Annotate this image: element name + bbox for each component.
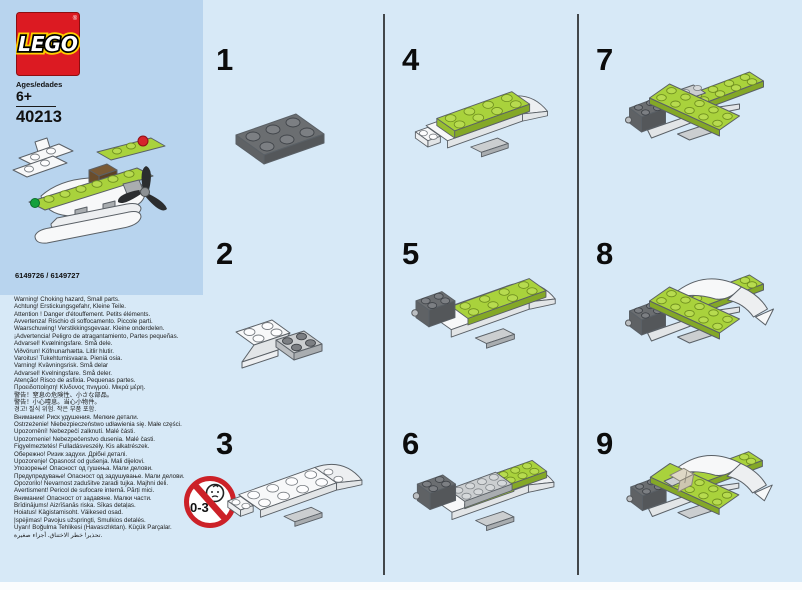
warning-line: Упозорење! Опасност од гушења. Мали дело… (14, 465, 196, 472)
logo-text: LEGO (18, 32, 78, 56)
warning-line: Opozorilo! Nevarnost zadušitve zaradi tu… (14, 480, 196, 487)
step-2-diagram (214, 292, 329, 387)
column-divider (383, 14, 385, 575)
lego-logo: LEGO LEGO LEGO ® (16, 12, 80, 76)
step-number-8: 8 (596, 238, 613, 269)
warning-line: Предупредување! Опасност од задушување. … (14, 473, 196, 480)
warning-line: Ostrzeżenie! Niebezpieczeństwo udławieni… (14, 421, 196, 428)
side-stud (626, 320, 632, 326)
warning-line: Avvertenza! Rischio di soffocamento. Pic… (14, 318, 196, 325)
element-ids: 6149726 / 6149727 (15, 271, 80, 280)
warning-line: Waarschuwing! Verstikkingsgevaar. Kleine… (14, 325, 196, 332)
side-stud (413, 493, 419, 499)
warning-line: Varning! Kvävningsrisk. Små delar (14, 362, 196, 369)
step-number-7: 7 (596, 44, 613, 75)
step-1-diagram (218, 100, 343, 185)
warning-line: Atenção! Risco de asfixia. Pequenas part… (14, 377, 196, 384)
warning-line: Brīdinājums! Aizrīšanās riska. Sīkas det… (14, 502, 196, 509)
seaplane-model-graphic (5, 118, 197, 268)
warning-line: Обережно! Ризик задухи. Дрібні деталі. (14, 451, 196, 458)
warning-line: Advarsel! Kvælningsfare. Små dele. (14, 340, 196, 347)
warning-line: 警告！窒息の危険性、小さな部品。 (14, 392, 196, 399)
side-stud (627, 496, 633, 502)
warning-line: Προειδοποίηση! Κίνδυνος πνιγμού. Μικρά μ… (14, 384, 196, 391)
warning-line: Viðvörun! Köfnunarhætta. Litlir hlutir. (14, 348, 196, 355)
step-number-2: 2 (216, 238, 233, 269)
warning-line: Varoitus! Tukehtumisvaara. Pieniä osia. (14, 355, 196, 362)
warning-line: Upozorenje! Opasnost od gušenja. Mali di… (14, 458, 196, 465)
age-value: 6+ (16, 88, 32, 104)
green-light-stud (31, 199, 40, 208)
step-5-diagram (408, 260, 566, 364)
warning-line: Upozornění! Nebezpečí zalknutí. Malé čás… (14, 428, 196, 435)
age-divider-rule (16, 106, 56, 107)
page-bottom-margin (0, 582, 802, 590)
step-9-diagram (622, 432, 780, 544)
step-number-4: 4 (402, 44, 419, 75)
step-6-diagram (408, 444, 566, 546)
step-number-9: 9 (596, 428, 613, 459)
warning-line: Avertisment! Pericol de sufocare internă… (14, 487, 196, 494)
step-4-diagram (410, 72, 560, 172)
warning-line: Upozornenie! Nebezpečenstvo dusenia. Mal… (14, 436, 196, 443)
column-divider (577, 14, 579, 575)
lego-logo-graphic: LEGO LEGO LEGO ® (16, 12, 80, 76)
warning-line: Внимание! Опасност от задавяне. Малки ча… (14, 495, 196, 502)
warning-line: Uyarı! Boğulma Tehlikesi (Havasızlıktan)… (14, 524, 196, 531)
warning-line: ¡Advertencia! Peligro de atragantamiento… (14, 333, 196, 340)
warning-line: 경고! 질식 위험. 작은 부품 포함. (14, 406, 196, 413)
warning-line: Įspėjimas! Pavojus užspringti, Smulkios … (14, 517, 196, 524)
warning-line: Attention ! Danger d'étouffement. Petits… (14, 311, 196, 318)
step-number-1: 1 (216, 44, 233, 75)
step-7-diagram (622, 52, 780, 170)
step-8-diagram (622, 255, 780, 373)
warning-line: Figyelmeztetés! Fulladásveszély. Kis alk… (14, 443, 196, 450)
instruction-sheet: LEGO LEGO LEGO ® Ages/edades 6+ 40213 (0, 0, 802, 590)
warning-text-block: Warning! Choking hazard, Small parts.Ach… (14, 296, 196, 539)
step-3-diagram (226, 440, 371, 542)
side-stud (626, 117, 632, 123)
warning-line: Warning! Choking hazard, Small parts. (14, 296, 196, 303)
warning-line: تحذير! خطر الاختناق. أجزاء صغيرة. (14, 532, 196, 539)
registered-mark: ® (73, 15, 78, 22)
warning-line: Hoiatus! Kägistamisoht. Väikesed osad. (14, 509, 196, 516)
warning-line: Внимание! Риск удушения. Мелкие детали. (14, 414, 196, 421)
warning-line: Achtung! Erstickungsgefahr, Kleine Teile… (14, 303, 196, 310)
red-light-stud (138, 136, 148, 146)
model-photo (5, 118, 197, 273)
side-stud (412, 310, 419, 317)
warning-line: Advarsel! Kvelningsfare. Små deler. (14, 370, 196, 377)
